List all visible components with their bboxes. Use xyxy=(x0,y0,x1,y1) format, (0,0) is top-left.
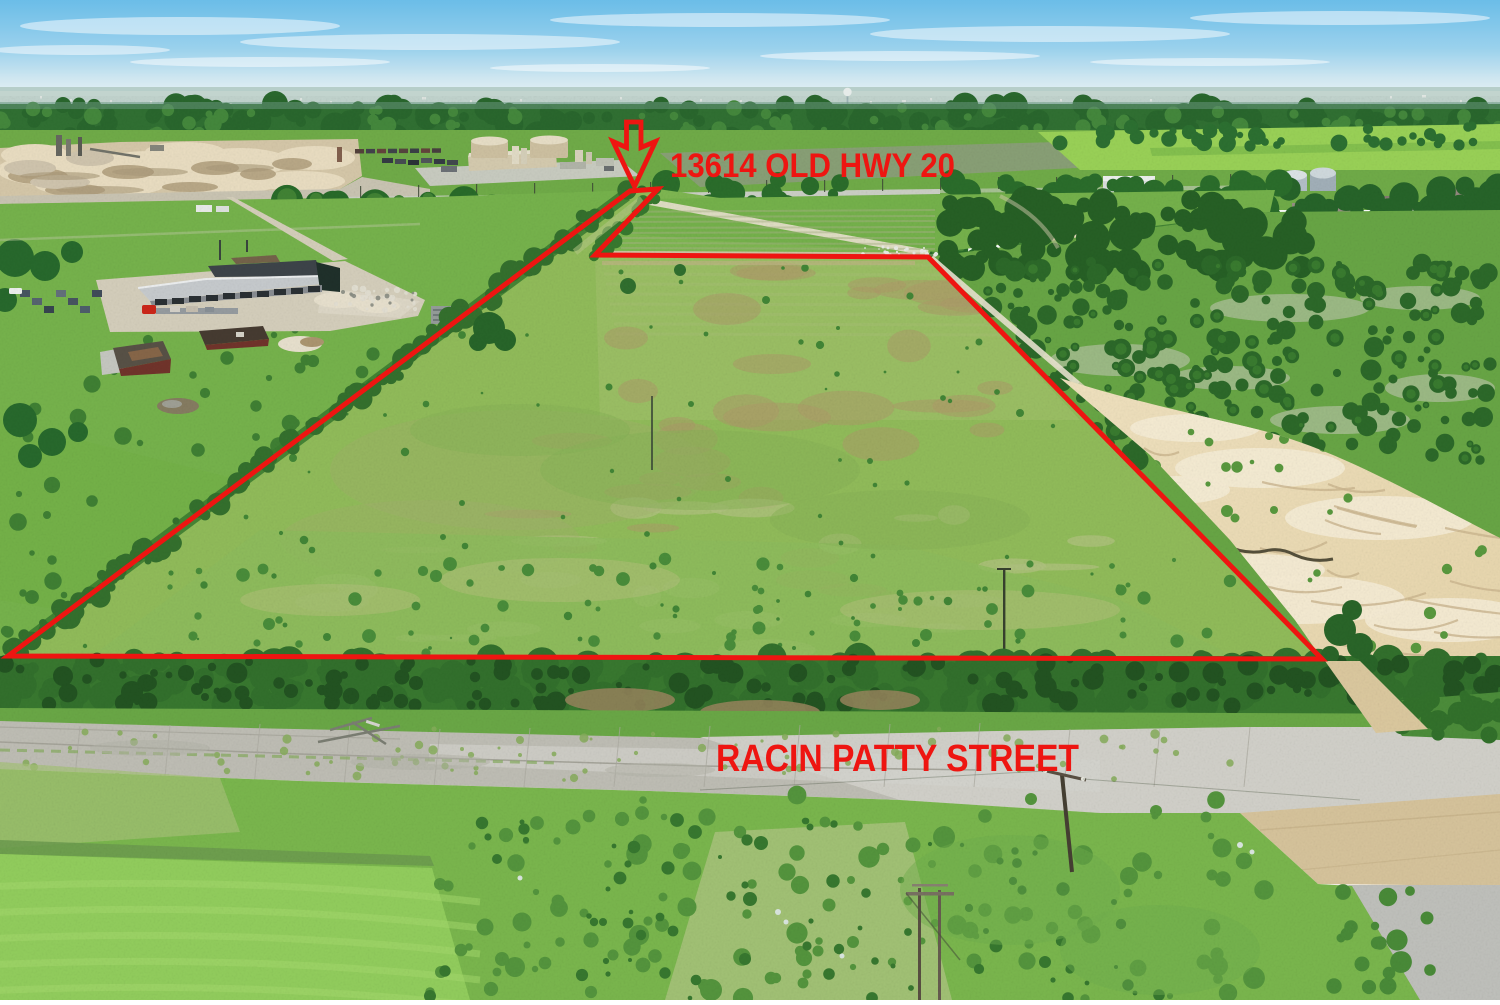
svg-text:RACIN PATTY STREET: RACIN PATTY STREET xyxy=(716,738,1079,780)
svg-text:13614 OLD HWY 20: 13614 OLD HWY 20 xyxy=(670,147,955,185)
